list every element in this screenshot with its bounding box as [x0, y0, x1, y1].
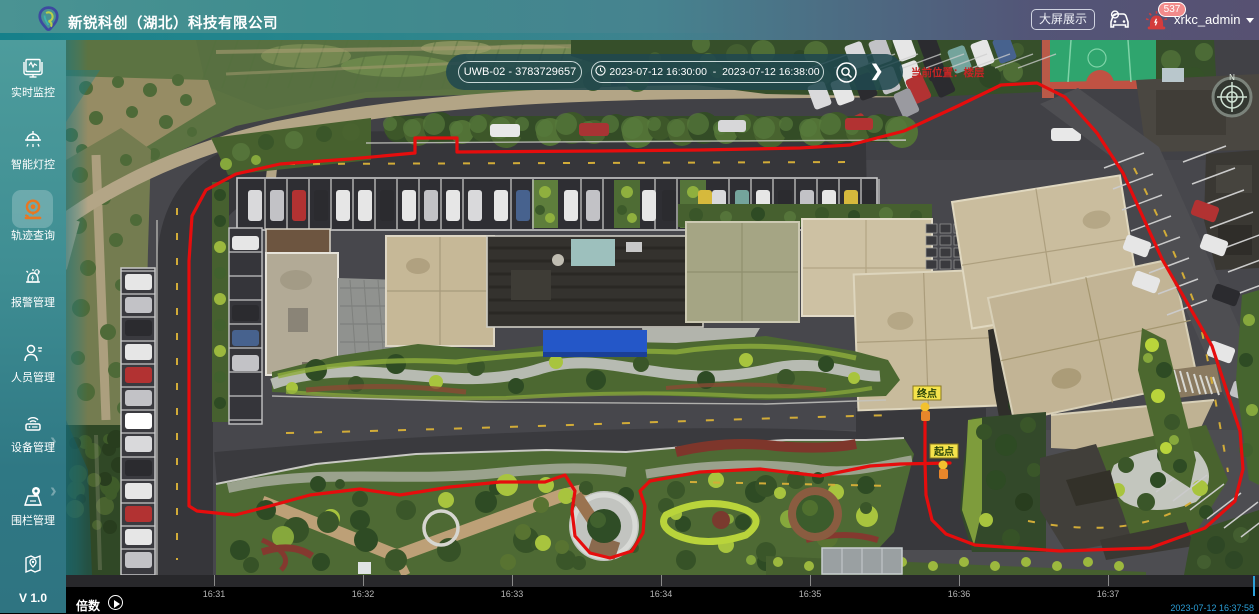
- svg-text:起点: 起点: [933, 445, 954, 458]
- svg-text:N: N: [1229, 73, 1235, 82]
- svg-text:终点: 终点: [917, 387, 937, 400]
